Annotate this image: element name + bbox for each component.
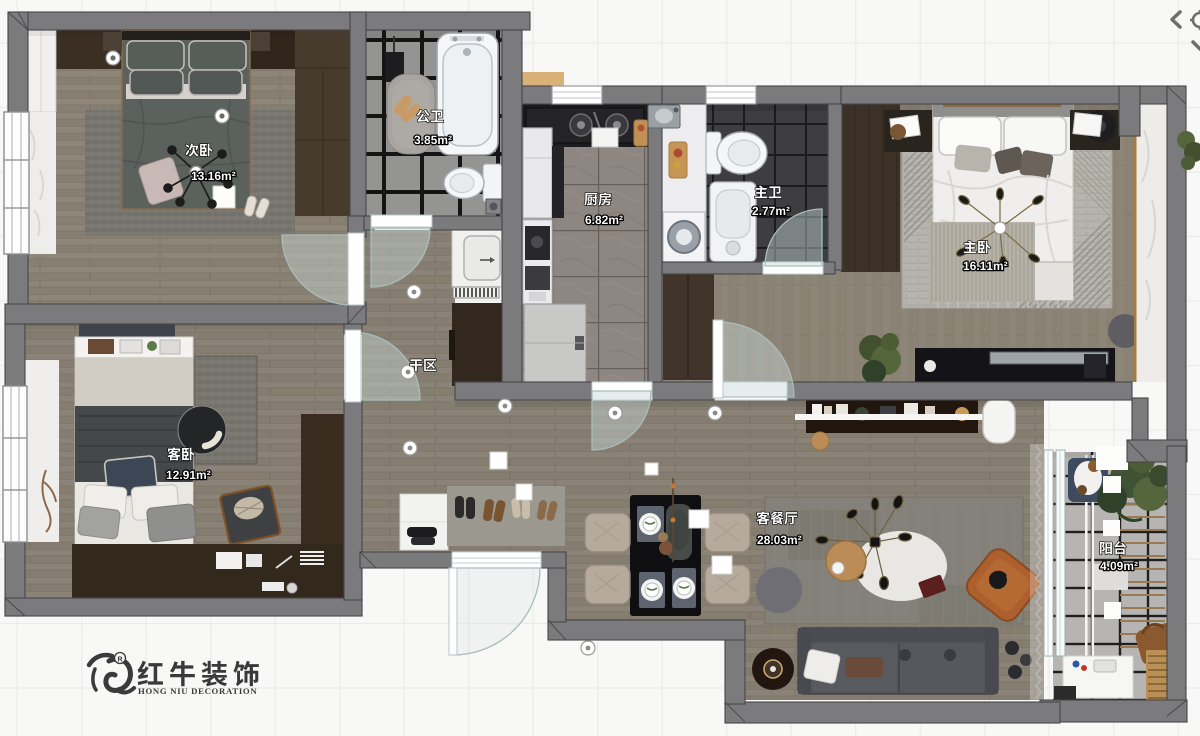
svg-text:HONG NIU DECORATION: HONG NIU DECORATION [138, 686, 257, 696]
svg-text:R: R [118, 657, 123, 664]
